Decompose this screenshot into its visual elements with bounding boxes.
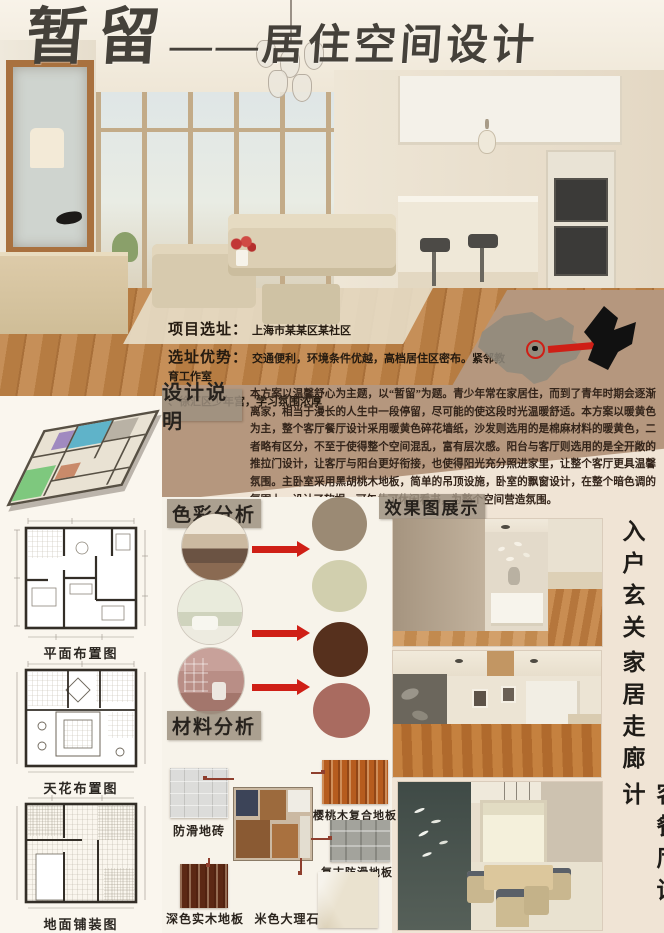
chair-shape xyxy=(212,682,226,700)
material-label-dark-wood: 深色实木地板 xyxy=(166,910,244,927)
title-dash: —— xyxy=(168,16,264,76)
caption-home-corridor: 家居走廊 xyxy=(614,650,648,778)
kitchen-island xyxy=(398,196,538,302)
axonometric-model xyxy=(2,400,160,514)
oven-door xyxy=(554,178,608,222)
material-label-beige-marble: 米色大理石 xyxy=(252,910,322,927)
paving-plan-drawing xyxy=(12,794,150,912)
color-swatch-darkbrown xyxy=(313,622,368,677)
kitchen-cabinets xyxy=(398,76,622,145)
floor-plan-drawing xyxy=(12,516,150,642)
oven-door xyxy=(554,226,608,276)
material-swatch-antislip-tile xyxy=(170,768,228,818)
material-swatch-dark-wood xyxy=(180,864,228,908)
title-main: 暂留 xyxy=(23,0,172,76)
oven-column xyxy=(546,150,616,304)
material-analysis-label: 材料分析 xyxy=(167,711,261,740)
red-flowers xyxy=(228,236,256,252)
project-location-value: 上海市某某区某社区 xyxy=(252,325,351,337)
title-sub: 居住空间设计 xyxy=(260,16,540,76)
bathtub-shape xyxy=(192,616,218,630)
color-swatch-rose xyxy=(313,683,370,738)
renders-label: 效果图展示 xyxy=(379,494,485,519)
render-home-corridor xyxy=(393,651,601,777)
connector-dot xyxy=(321,770,325,774)
render-dining-room xyxy=(398,782,602,930)
material-key-plan xyxy=(233,787,313,861)
bedroom-photo xyxy=(178,648,244,714)
design-notes-label: 设计说明 xyxy=(162,389,242,421)
shelving-shape xyxy=(184,658,208,692)
window-transom xyxy=(96,128,334,132)
page-title: 暂留 —— 居住空间设计 xyxy=(26,0,646,76)
pendant-lamp xyxy=(478,130,496,154)
location-marker-icon xyxy=(526,340,545,359)
vase xyxy=(236,250,248,266)
connector-dot xyxy=(298,871,302,875)
ceiling-plan-drawing xyxy=(12,660,150,776)
caption-entrance-foyer: 入户玄关 xyxy=(614,519,648,647)
connector-dot xyxy=(203,776,207,780)
material-swatch-beige-marble xyxy=(318,872,378,928)
living-room-photo xyxy=(182,514,248,580)
connector-dot xyxy=(328,836,332,840)
connector-dot xyxy=(206,863,210,867)
bar-stool xyxy=(420,238,450,252)
red-arrow-icon xyxy=(252,630,310,637)
material-swatch-retro-tile xyxy=(330,820,390,862)
red-arrow-icon xyxy=(252,684,310,691)
site-advantage-label: 选址优势： xyxy=(168,350,248,366)
red-arrow-icon xyxy=(252,546,310,553)
sideboard xyxy=(0,252,128,334)
material-swatch-cherry-wood xyxy=(322,760,388,804)
design-poster: 暂留 —— 居住空间设计 项目选址： 上海市某某区某社区 选址优势： 交通便利，… xyxy=(0,0,664,933)
table-lamp xyxy=(30,128,64,168)
region-silhouette-icon xyxy=(574,298,662,378)
location-map xyxy=(452,292,664,392)
design-notes-body: 本方案以温馨舒心为主题，以“暂留”为题。青少年常在家居住，而到了青年时期会逐渐离… xyxy=(250,386,656,498)
bar-stool xyxy=(468,234,498,248)
render-entrance-foyer xyxy=(393,519,602,646)
color-swatch-taupe xyxy=(312,497,367,551)
connector-line xyxy=(206,778,234,780)
color-swatch-sage xyxy=(312,560,367,612)
project-location-label: 项目选址： xyxy=(168,322,248,338)
material-label-antislip-tile: 防滑地砖 xyxy=(166,822,232,839)
paving-plan-label: 地面铺装图 xyxy=(0,914,162,933)
bathroom-photo xyxy=(178,580,242,644)
caption-living-dining-design: 客餐厅设计 xyxy=(614,782,664,932)
